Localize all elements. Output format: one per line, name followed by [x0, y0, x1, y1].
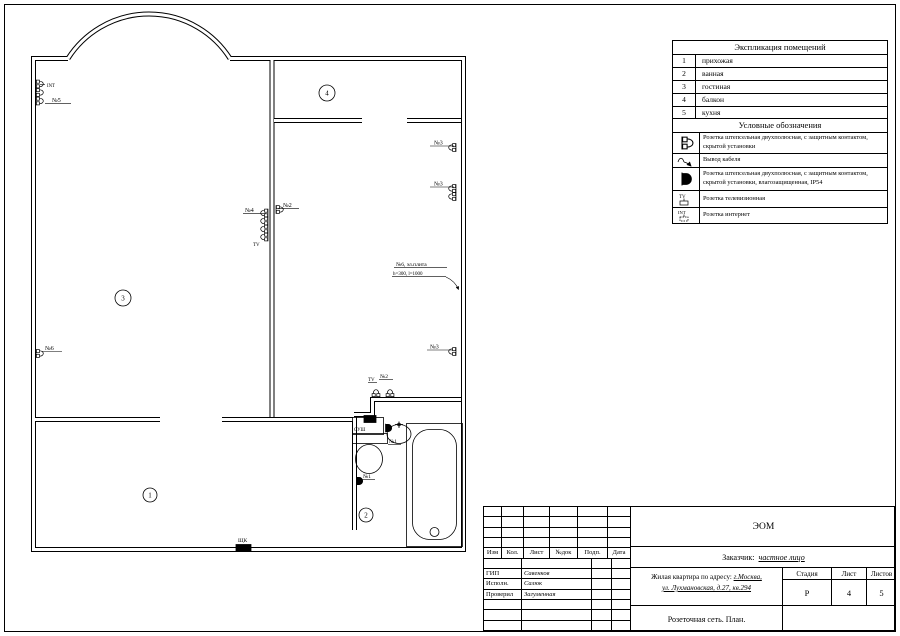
- label-socket-group3-a: №3: [434, 141, 443, 147]
- label-socket-sink1: №1: [389, 439, 397, 445]
- label-socket-group5: №5: [52, 98, 61, 104]
- signer-role: Проверил: [484, 590, 522, 599]
- legend-row: Розетка штепсельная двухполюсная, с защи…: [673, 168, 887, 191]
- table-row: 3 гостиная: [673, 81, 887, 94]
- room-numbers: [115, 85, 373, 522]
- label-dryer: СУШ: [354, 428, 366, 433]
- table-row: 4 балкон: [673, 94, 887, 107]
- customer-value: частное лицо: [759, 553, 805, 562]
- col-izm: Изм: [484, 548, 502, 557]
- legend-table: Условные обозначения Розетка штепсельная…: [672, 118, 888, 224]
- toilet: [353, 434, 388, 474]
- int-icon-label: INT: [678, 210, 686, 215]
- drawing-sheet: INT №5 №6 №4 TV №2 №3 №3 №3 №6, эл.плита…: [0, 0, 900, 636]
- waterproof-socket-icon: [676, 171, 696, 187]
- room-name: ванная: [696, 68, 887, 80]
- label-socket-kitchen2: №2: [380, 374, 388, 380]
- legend-text: Розетка интернет: [700, 208, 887, 223]
- walls: [33, 14, 464, 549]
- signer-name: Салюк: [522, 579, 592, 588]
- object-city: г.Москва,: [734, 573, 762, 581]
- signer-row: ГИП Савенков: [484, 569, 630, 579]
- legend-text: Розетка телевизионная: [700, 191, 887, 207]
- signer-name: Загуменная: [522, 590, 592, 599]
- label-stove-callout: №6, эл.плита: [396, 262, 427, 268]
- customer-label: Заказчик:: [722, 553, 754, 562]
- document-title: Розеточная сеть. План.: [631, 606, 783, 632]
- plan-labels: INT №5 №6 №4 TV №2 №3 №3 №3 №6, эл.плита…: [45, 84, 443, 544]
- title-block: Изм Кол. Лист №док Подп. Дата ГИП Савенк…: [483, 506, 895, 631]
- label-socket-group2: №2: [283, 203, 292, 209]
- signer-row: Проверил Загуменная: [484, 590, 630, 600]
- stage-label: Стадия: [783, 568, 832, 579]
- label-socket-group3-b: №3: [434, 182, 443, 188]
- col-kol: Кол.: [502, 548, 524, 557]
- stage-sheet-block: Стадия Лист Листов Р 4 5: [783, 568, 896, 605]
- label-socket-group4: №4: [245, 208, 254, 214]
- label-stove-dims: h=300, l=1000: [393, 272, 423, 277]
- legend-row: TV Розетка телевизионная: [673, 191, 887, 208]
- tv-socket-icon: TV: [676, 192, 696, 207]
- label-socket-bath1: №1: [363, 474, 371, 480]
- project-code: ЭОМ: [631, 507, 896, 547]
- room-index: 4: [673, 94, 696, 106]
- legend-text: Вывод кабеля: [700, 154, 887, 167]
- legend-text: Розетка штепсельная двухполюсная, с защи…: [700, 133, 887, 153]
- title-block-main: ЭОМ Заказчик: частное лицо Жилая квартир…: [631, 507, 896, 630]
- label-socket-group6: №6: [45, 346, 54, 352]
- explication-title: Экспликация помещений: [673, 41, 887, 55]
- socket-icon: [676, 135, 696, 151]
- customer-line: Заказчик: частное лицо: [631, 547, 896, 568]
- walls-infill: [33, 14, 464, 549]
- cable-outlet-icon: [676, 155, 696, 167]
- room-number-3: 3: [121, 295, 125, 303]
- col-podp: Подп.: [578, 548, 608, 557]
- room-name: балкон: [696, 94, 887, 106]
- explication-table: Экспликация помещений 1 прихожая 2 ванна…: [672, 40, 888, 120]
- table-row: 2 ванная: [673, 68, 887, 81]
- room-index: 2: [673, 68, 696, 80]
- room-name: гостиная: [696, 81, 887, 93]
- signer-name: Савенков: [522, 569, 592, 578]
- object-street: ул. Лухмановская, д.27, кв.294: [662, 584, 751, 592]
- room-name: прихожая: [696, 55, 887, 67]
- signer-role: Исполн.: [484, 579, 522, 588]
- sheet-label: Лист: [832, 568, 867, 579]
- internet-socket-icon: INT: [676, 208, 696, 223]
- revision-header-row: Изм Кол. Лист №док Подп. Дата: [484, 548, 630, 558]
- label-int: INT: [47, 84, 55, 89]
- room-number-1: 1: [148, 492, 152, 500]
- label-tv-kitchen: TV: [368, 378, 375, 383]
- room-number-2: 2: [364, 512, 368, 520]
- electrical-panel: [236, 545, 251, 552]
- socket-symbols: [36, 80, 456, 486]
- room-number-4: 4: [325, 90, 329, 98]
- bathtub: [407, 424, 463, 547]
- room-index: 1: [673, 55, 696, 67]
- stage-value: Р: [783, 580, 832, 606]
- col-list: Лист: [524, 548, 550, 557]
- legend-text: Розетка штепсельная двухполюсная, с защи…: [700, 168, 887, 190]
- col-data: Дата: [608, 548, 630, 557]
- sheet-value: 4: [832, 580, 867, 606]
- title-block-revision-grid: Изм Кол. Лист №док Подп. Дата ГИП Савенк…: [484, 507, 631, 630]
- signer-row: Исполн. Салюк: [484, 579, 630, 589]
- legend-row: Вывод кабеля: [673, 154, 887, 168]
- object-prefix: Жилая квартира по адресу:: [651, 573, 732, 581]
- tv-icon-label: TV: [679, 195, 686, 200]
- col-ndok: №док: [550, 548, 578, 557]
- label-tv-wall: TV: [253, 243, 260, 248]
- legend-row: INT Розетка интернет: [673, 208, 887, 223]
- label-panel: ЩК: [238, 538, 248, 544]
- sheets-value: 5: [867, 580, 896, 606]
- signer-role: ГИП: [484, 569, 522, 578]
- object-address: Жилая квартира по адресу: г.Москва, ул. …: [631, 568, 783, 605]
- room-index: 3: [673, 81, 696, 93]
- label-socket-group3-c: №3: [430, 345, 439, 351]
- legend-row: Розетка штепсельная двухполюсная, с защи…: [673, 133, 887, 154]
- table-row: 1 прихожая: [673, 55, 887, 68]
- sheets-label: Листов: [867, 568, 896, 579]
- legend-title: Условные обозначения: [673, 119, 887, 133]
